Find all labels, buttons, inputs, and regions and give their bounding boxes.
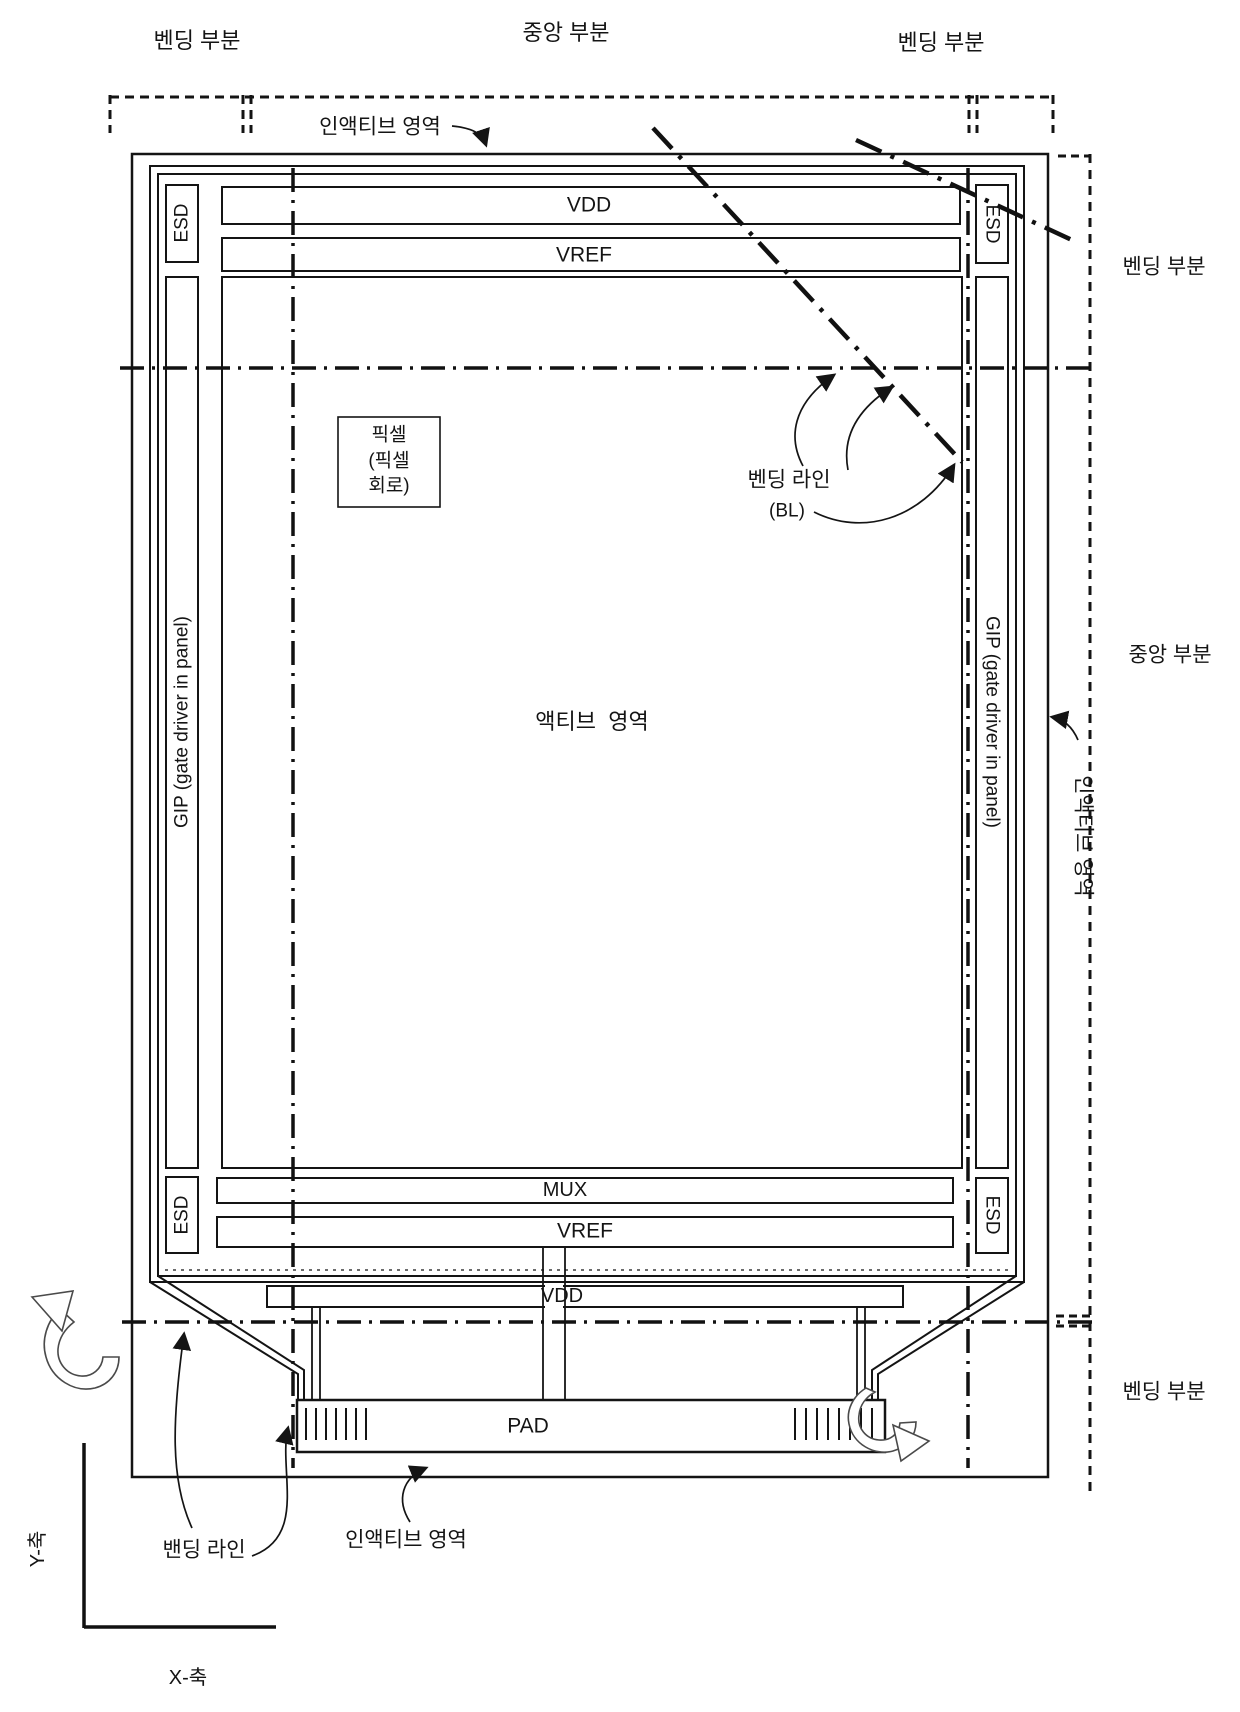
banding-line-arrow-1 [175,1334,192,1528]
label-inactive-area-right: 인액티브 영역 [1073,775,1094,897]
vdd-bottom-bar [267,1286,903,1307]
label-active-area: 액티브 영역 [535,711,648,733]
fanout-and-pad [150,1247,1024,1452]
label-vdd-bottom: VDD [541,1286,583,1306]
label-central-portion-right: 중앙 부분 [1128,645,1211,666]
bending-lines [120,168,1092,1468]
inactive-top-arrow [452,126,486,145]
bending-line-diagonal-main [653,128,962,462]
label-y-axis: Y-축 [28,1531,48,1568]
outer-substrate-frame [132,154,1048,1477]
bending-line-arrow-2 [847,387,892,470]
top-bracket-dashed [110,95,1053,133]
label-bending-line: 벤딩 라인 [747,470,830,491]
label-inactive-area-bottom: 인액티브 영역 [345,1530,467,1551]
label-x-axis: X-축 [169,1668,207,1688]
label-esd-bottom-right: ESD [983,1195,1002,1234]
banding-line-arrow-2 [252,1428,288,1556]
signal-bars [217,187,960,1307]
label-gip-left: GIP (gate driver in panel) [173,616,192,828]
label-central-portion-top: 중앙 부분 [522,22,609,44]
panel-frames [132,154,1048,1477]
label-bending-portion-right-bottom: 벤딩 부분 [1122,1382,1205,1403]
label-bending-line-abbr: (BL) [769,502,805,521]
label-bending-portion-right-top: 벤딩 부분 [1122,257,1205,278]
coordinate-axes [84,1443,276,1628]
label-esd-top-left: ESD [173,203,192,242]
label-vdd-top: VDD [567,195,611,216]
label-esd-top-right: ESD [983,204,1002,243]
label-esd-bottom-left: ESD [173,1195,192,1234]
pad-box [297,1400,885,1452]
pixel-line-2: (픽셀 [368,448,409,474]
inactive-right-arrow [1052,717,1078,740]
label-vref-bottom: VREF [557,1221,613,1242]
pad-hatch-left [306,1408,366,1440]
bending-line-arrow-3 [814,465,954,523]
label-banding-line-bottom: 밴딩 라인 [162,1540,245,1561]
pixel-line-3: 회로) [368,474,409,500]
pixel-line-1: 픽셀 [368,423,409,449]
bending-line-arrow-1 [795,375,834,466]
label-mux: MUX [543,1180,587,1200]
patent-figure-display-panel: 벤딩 부분 중앙 부분 벤딩 부분 인액티브 영역 VDD VREF ESD E… [0,0,1240,1712]
label-bending-portion-top-left: 벤딩 부분 [153,30,240,52]
rotation-arrow-left [32,1291,119,1389]
leader-arrows [175,126,1078,1556]
label-vref-top: VREF [556,245,612,266]
label-pixel-circuit: 픽셀 (픽셀 회로) [368,423,409,500]
label-bending-portion-top-right: 벤딩 부분 [897,32,984,54]
panel-diagram-drawing [0,0,1240,1712]
label-gip-right: GIP (gate driver in panel) [983,616,1002,828]
label-inactive-area-top: 인액티브 영역 [319,117,441,138]
label-pad: PAD [507,1416,549,1437]
